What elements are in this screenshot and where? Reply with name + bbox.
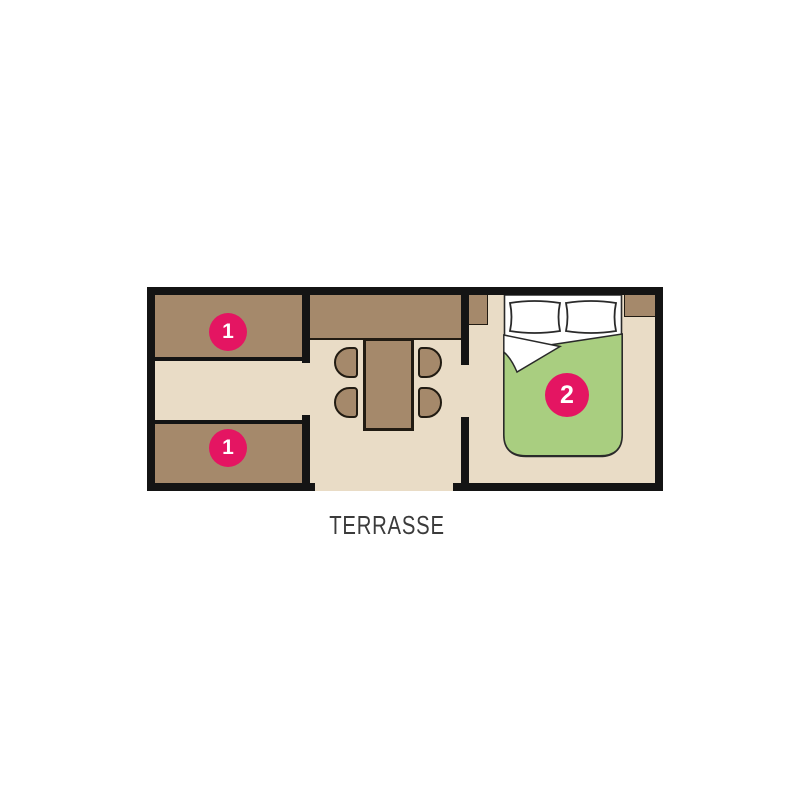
cabinet-icon [469, 295, 488, 325]
floorplan: 1 1 2 [147, 287, 663, 491]
wall-left [147, 287, 155, 491]
wall-top [147, 287, 663, 295]
pillow-icon [566, 301, 616, 333]
chair-icon [334, 347, 358, 378]
room-badge-1: 1 [209, 429, 247, 467]
interior-wall [302, 287, 310, 363]
floorplan-canvas: 1 1 2 TERRASSE [0, 0, 800, 800]
wall-bottom-right [453, 483, 663, 491]
room-badge-1: 1 [209, 313, 247, 351]
dining-table-icon [363, 338, 414, 431]
wall-right [655, 287, 663, 491]
pillow-icon [510, 301, 560, 333]
interior-wall [302, 415, 310, 491]
interior-wall [461, 287, 469, 365]
kitchen-counter-icon [310, 295, 461, 340]
terrace-door-opening [315, 483, 453, 491]
cabinet-icon [624, 295, 656, 317]
room-badge-2: 2 [545, 373, 589, 417]
chair-icon [334, 387, 358, 418]
interior-wall [461, 417, 469, 491]
terrace-label: TERRASSE [200, 510, 574, 541]
wall-bottom-left [147, 483, 315, 491]
